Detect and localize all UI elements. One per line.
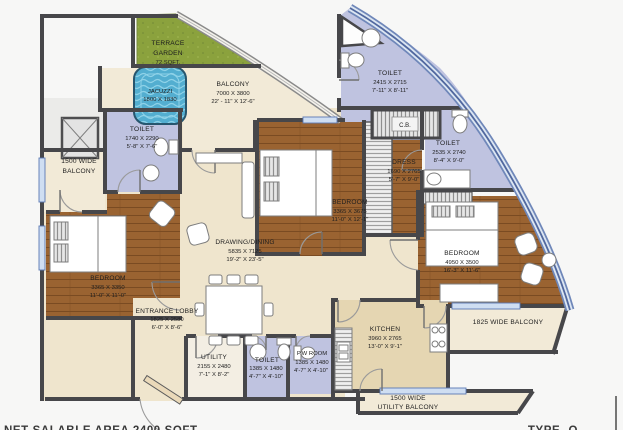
svg-text:1385 X 1480: 1385 X 1480	[249, 366, 283, 372]
balcony-left-label: 1500 WIDE	[61, 158, 97, 165]
svg-text:11'-0" X 12'-1": 11'-0" X 12'-1"	[332, 217, 369, 223]
svg-text:3960 X 2765: 3960 X 2765	[368, 336, 402, 342]
svg-text:1825 X 2580: 1825 X 2580	[150, 317, 184, 323]
svg-text:1385 X 1480: 1385 X 1480	[295, 360, 329, 366]
svg-text:19'-2" X 23'-5": 19'-2" X 23'-5"	[226, 257, 263, 263]
bed-mid	[260, 150, 332, 216]
toilet-top-label: TOILET	[378, 70, 402, 77]
svg-text:2415 X 2715: 2415 X 2715	[373, 80, 407, 86]
utility-balcony-label: 1500 WIDE	[390, 395, 426, 402]
toilet-left-label: TOILET	[130, 126, 154, 133]
glass-slider-bedroom-right	[452, 303, 520, 309]
svg-text:BALCONY: BALCONY	[63, 168, 96, 175]
pw-room-label: P.W ROOM	[297, 351, 327, 357]
washbasin	[143, 165, 159, 181]
bedroom-right-label: BEDROOM	[444, 250, 479, 257]
dress-label: DRESS	[392, 159, 416, 166]
svg-text:22' - 11" X 12'-6": 22' - 11" X 12'-6"	[211, 99, 254, 105]
balcony-right-floor	[448, 306, 566, 352]
svg-text:1800 X 1830: 1800 X 1830	[143, 97, 177, 103]
balcony-top-label: BALCONY	[217, 81, 250, 88]
bedroom-mid-label: BEDROOM	[332, 199, 367, 206]
floorplan-sheet: TERRACE GARDEN 72 SQFT. JACUZZI 1800 X 1…	[0, 0, 623, 430]
svg-text:8'-4" X 9'-0": 8'-4" X 9'-0"	[434, 158, 465, 164]
svg-text:6'-0" X 8'-6": 6'-0" X 8'-6"	[152, 325, 183, 331]
svg-text:7000 X 3800: 7000 X 3800	[216, 91, 250, 97]
svg-text:5835 X 7125: 5835 X 7125	[228, 249, 262, 255]
svg-text:11'-0" X 11'-0": 11'-0" X 11'-0"	[90, 293, 126, 299]
svg-text:3365 X 3675: 3365 X 3675	[333, 209, 367, 215]
svg-text:13'-0" X 9'-1": 13'-0" X 9'-1"	[368, 344, 402, 350]
type-label: TYPE- O	[528, 425, 578, 430]
svg-text:4'-7" X 4'-10": 4'-7" X 4'-10"	[294, 368, 328, 374]
svg-text:5'-8" X 7'-6": 5'-8" X 7'-6"	[127, 144, 158, 150]
jacuzzi-label: JACUZZI	[148, 89, 173, 95]
bedroom-left-label: BEDROOM	[90, 275, 125, 282]
entrance-lobby-label: ENTRANCE LOBBY	[136, 308, 199, 315]
svg-text:72 SQFT.: 72 SQFT.	[156, 60, 181, 66]
svg-text:4950 X 3500: 4950 X 3500	[445, 260, 479, 266]
window-bedroom-left	[39, 226, 45, 270]
svg-text:1690 X 2765: 1690 X 2765	[387, 169, 421, 175]
svg-text:3365 X 3350: 3365 X 3350	[91, 285, 125, 291]
toilet-bottom-label: TOILET	[255, 357, 279, 364]
svg-text:7'-1" X 8'-2": 7'-1" X 8'-2"	[199, 372, 230, 378]
window-utility-balcony	[380, 388, 466, 394]
toilet-right-label: TOILET	[436, 140, 460, 147]
svg-text:GARDEN: GARDEN	[153, 50, 182, 57]
svg-text:16'-3" X 11'-6": 16'-3" X 11'-6"	[444, 268, 481, 274]
svg-text:2535 X 2740: 2535 X 2740	[432, 150, 466, 156]
salable-area-note: NET SALABLE AREA 2400 SQFT.	[4, 425, 200, 430]
svg-text:7'-11" X 8'-11": 7'-11" X 8'-11"	[372, 88, 408, 94]
floorplan-drawing: TERRACE GARDEN 72 SQFT. JACUZZI 1800 X 1…	[0, 0, 623, 430]
svg-text:1740 X 2290: 1740 X 2290	[125, 136, 159, 142]
svg-text:UTILITY BALCONY: UTILITY BALCONY	[378, 404, 439, 411]
kitchen-label: KITCHEN	[370, 326, 400, 333]
svg-text:2155 X 2480: 2155 X 2480	[197, 364, 231, 370]
washbasin	[362, 29, 380, 47]
dresser	[440, 284, 498, 302]
svg-text:5'-7" X 9'-0": 5'-7" X 9'-0"	[389, 177, 420, 183]
svg-text:4'-7" X 4'-10": 4'-7" X 4'-10"	[249, 374, 283, 380]
bed-left	[50, 216, 126, 272]
dining-table-set	[195, 275, 273, 345]
terrace-garden-label: TERRACE	[152, 40, 185, 47]
cupboard-label: C.B.	[399, 123, 411, 129]
window-bedroom-mid	[303, 117, 337, 123]
drawing-dining-label: DRAWING/DINING	[215, 239, 274, 246]
utility-label: UTILITY	[201, 354, 227, 361]
window-balcony-left	[39, 158, 45, 202]
washbasin	[427, 173, 441, 185]
balcony-right-label: 1825 WIDE BALCONY	[473, 319, 544, 326]
